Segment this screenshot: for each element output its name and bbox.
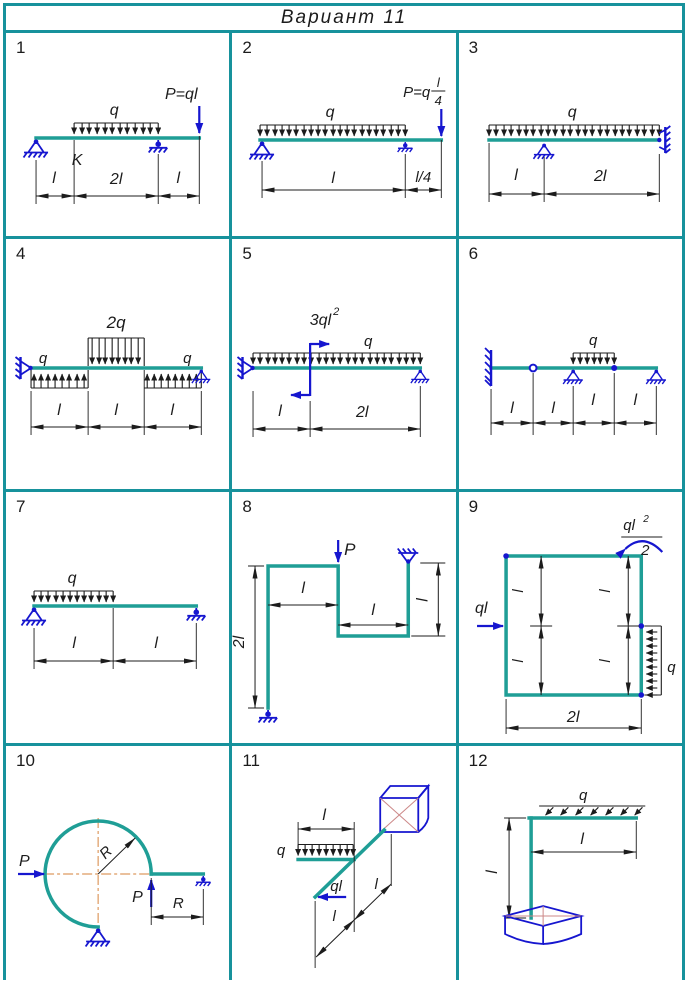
inner-dimensions-left: l l <box>510 556 552 695</box>
dim-label: l <box>114 402 118 419</box>
beam-diagram-7: q l l <box>6 492 229 743</box>
dimension-r: R <box>151 878 203 925</box>
problem-cell-12: 12 q l l <box>459 746 682 980</box>
load-label-right: q <box>183 350 192 367</box>
ring-diagram-10: P P R R <box>6 746 229 980</box>
dim-label: l <box>551 400 555 417</box>
beam-diagram-1: q P=ql K l 2l l <box>6 33 229 236</box>
problem-cell-10: 10 P P R R <box>6 746 229 980</box>
force-label: ql <box>475 600 488 617</box>
pin-support-icon <box>563 370 583 384</box>
moment-exponent: 2 <box>642 514 649 525</box>
wall-pin-support-icon <box>16 357 33 379</box>
dim-label: l <box>597 659 614 663</box>
distributed-load <box>573 353 614 364</box>
problem-number: 7 <box>16 497 25 517</box>
problem-number: 1 <box>16 38 25 58</box>
moment-exponent: 2 <box>332 306 339 318</box>
hinge-icon <box>529 365 536 372</box>
wall-pin-support-icon <box>238 357 255 379</box>
dimensions: l 2l <box>489 143 659 202</box>
pin-support-icon <box>533 144 554 159</box>
distributed-load <box>298 845 353 856</box>
pin-support-icon <box>86 929 111 947</box>
fixed-wall-support-icon <box>485 348 491 386</box>
dimensions: l l l l <box>491 373 656 435</box>
fixed-block-support-icon <box>505 906 581 944</box>
load-label: q <box>567 104 576 121</box>
pin-support-icon <box>411 370 429 384</box>
problem-cell-5: 5 q 3ql 2 l 2l <box>232 239 455 489</box>
bottom-dimension: 2l <box>506 699 641 734</box>
dim-label: l <box>372 602 376 619</box>
dim-label: l <box>415 598 432 602</box>
frame <box>268 563 408 708</box>
problem-cell-4: 4 2q q q <box>6 239 229 489</box>
pin-support-icon <box>646 370 666 384</box>
load-label: q <box>589 332 598 349</box>
fixed-block-support-icon <box>381 786 429 832</box>
point-k-label: K <box>72 152 84 169</box>
dim-label: l <box>279 403 283 420</box>
dim-label: l <box>333 908 337 925</box>
problem-cell-3: 3 q l 2l <box>459 33 682 236</box>
dim-label: l <box>510 589 527 593</box>
dim-label: l <box>57 402 61 419</box>
dim-label: l <box>484 870 501 874</box>
load-label: q <box>667 659 676 676</box>
dim-label: 2l <box>109 171 123 188</box>
dim-label: l <box>170 402 174 419</box>
distributed-load-middle <box>88 338 144 366</box>
problem-number: 11 <box>242 751 260 771</box>
dim-label: l <box>332 170 336 187</box>
dimensions: l 2l <box>253 386 420 437</box>
force-frac-den: 4 <box>435 93 442 108</box>
problem-number: 8 <box>242 497 251 517</box>
moment-numerator: ql <box>623 517 635 534</box>
force-frac-num: l <box>437 75 441 90</box>
distributed-load <box>539 806 645 815</box>
force-label: ql <box>331 878 343 895</box>
moment-label: 3ql <box>310 312 332 329</box>
load-label-middle: 2q <box>106 313 126 332</box>
inner-dimensions-right: l l <box>597 556 639 695</box>
distributed-load <box>34 591 113 602</box>
roller-support-icon <box>398 142 413 152</box>
dim-label: l <box>176 170 180 187</box>
problem-cell-11: 11 q ql <box>232 746 455 980</box>
distributed-load <box>489 125 659 136</box>
force-label: P <box>344 540 356 559</box>
dim-label: l <box>510 400 514 417</box>
dim-label: l <box>633 392 637 409</box>
problem-number: 10 <box>16 751 35 771</box>
dimensions: l l l <box>298 807 391 968</box>
roller-support-icon <box>196 876 211 886</box>
dim-label: 2l <box>593 168 607 185</box>
spatial-bar-diagram-11: q ql l l l <box>232 746 455 980</box>
problem-cell-2: 2 q P=q l 4 l <box>232 33 455 236</box>
dimensions: l l <box>34 608 196 669</box>
spatial-bar-diagram-12: q l l <box>459 746 682 980</box>
force-label: P=q l 4 <box>403 75 445 108</box>
problem-number: 2 <box>242 38 251 58</box>
beam-diagram-4: 2q q q l l l <box>6 239 229 489</box>
pin-support-icon <box>250 142 275 160</box>
moment-label: ql 2 2 <box>621 514 662 559</box>
node-dot <box>503 553 509 559</box>
dimensions: l l <box>484 818 636 918</box>
distributed-load-left <box>31 370 88 388</box>
dim-label: l <box>597 589 614 593</box>
pin-support-icon <box>24 140 49 158</box>
moment-denominator: 2 <box>640 542 650 559</box>
load-label: q <box>68 570 77 587</box>
problem-number: 12 <box>469 751 488 771</box>
ceiling-pin-support-icon <box>398 549 419 564</box>
force-prefix: P=q <box>403 84 431 101</box>
roller-support-icon <box>187 608 206 621</box>
problem-cell-1: 1 q P=ql K l 2l l <box>6 33 229 236</box>
dim-label: 2l <box>232 635 248 649</box>
sheet-title: Вариант 11 <box>6 6 682 30</box>
force-label: P=ql <box>165 86 198 103</box>
distributed-load <box>260 125 405 136</box>
beam-diagram-2: q P=q l 4 l l/4 <box>232 33 455 236</box>
dimensions: l 2l l <box>36 136 199 204</box>
dim-label: l <box>302 580 306 597</box>
pin-support-icon <box>22 608 47 626</box>
force-label: P <box>19 853 30 870</box>
distributed-load <box>644 626 661 695</box>
problem-number: 3 <box>469 38 478 58</box>
dim-label: l <box>323 807 327 824</box>
frame-diagram-8: P 2l l l l <box>232 492 455 743</box>
problem-number: 4 <box>16 244 25 264</box>
dim-label: 2l <box>566 709 580 726</box>
beam-diagram-3: q l 2l <box>459 33 682 236</box>
dim-label: l <box>580 831 584 848</box>
variant-sheet: Вариант 11 1 q P=ql K l <box>3 3 685 980</box>
force-label: P <box>132 889 143 906</box>
frame-diagram-9: ql ql 2 2 q l l <box>459 492 682 743</box>
dim-label: R <box>173 895 184 912</box>
distributed-load <box>74 123 158 134</box>
load-label: q <box>110 102 119 119</box>
load-label-left: q <box>39 350 48 367</box>
load-label: q <box>579 787 588 804</box>
problem-cell-9: 9 ql ql 2 2 q <box>459 492 682 743</box>
dim-label: l <box>52 170 56 187</box>
dimensions: l l/4 <box>262 140 441 198</box>
closed-frame <box>506 556 641 695</box>
beam-diagram-5: q 3ql 2 l 2l <box>232 239 455 489</box>
node-dot <box>638 692 644 698</box>
problem-cell-8: 8 P 2l l l l <box>232 492 455 743</box>
roller-support-icon <box>149 140 168 153</box>
problem-number: 5 <box>242 244 251 264</box>
node-dot <box>638 623 644 629</box>
dim-label: l <box>591 392 595 409</box>
problem-number: 9 <box>469 497 478 517</box>
dim-label: l <box>154 635 158 652</box>
problem-cell-6: 6 q <box>459 239 682 489</box>
dim-label: l <box>375 876 379 893</box>
dim-label: l <box>514 167 518 184</box>
load-label: q <box>326 104 335 121</box>
problem-cell-7: 7 q l l <box>6 492 229 743</box>
distributed-load <box>253 353 420 364</box>
dim-label: 2l <box>355 404 369 421</box>
dim-label: l <box>72 635 76 652</box>
roller-support-icon <box>259 710 278 723</box>
beam-diagram-6: q l l l l <box>459 239 682 489</box>
dim-label: l <box>510 659 527 663</box>
load-label: q <box>277 842 286 859</box>
load-label: q <box>364 333 373 350</box>
problem-number: 6 <box>469 244 478 264</box>
dim-label: l/4 <box>416 169 432 186</box>
hinge-icon <box>611 365 617 371</box>
